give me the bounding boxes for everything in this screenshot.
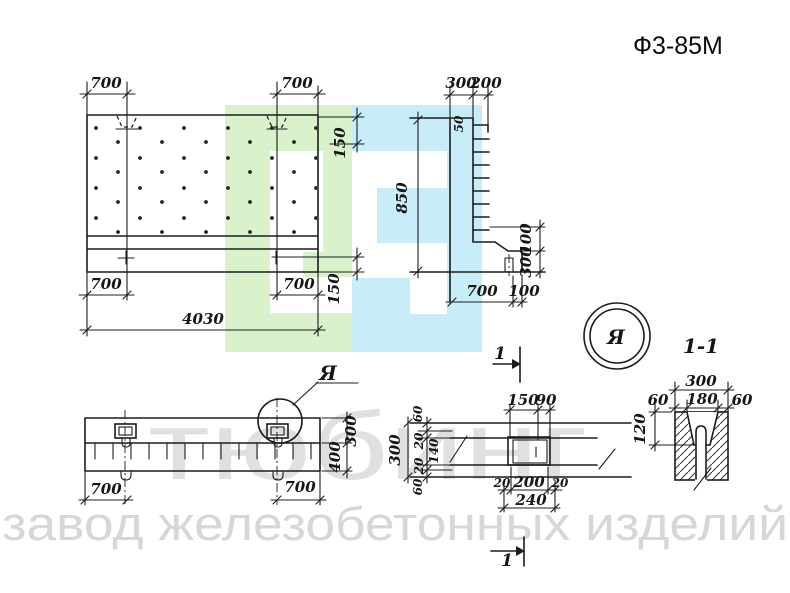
dim-20: 20	[412, 457, 426, 475]
drawing-sheet: тюбинг завод железобетонных изделий Ф3-8…	[0, 0, 790, 593]
dim-300: 300	[685, 372, 717, 390]
marker-letter: Я	[606, 325, 626, 349]
dim-60: 60	[411, 405, 425, 422]
dim-300: 300	[342, 415, 360, 447]
dim-850: 850	[393, 182, 411, 214]
dim-300: 300	[386, 434, 404, 466]
dim-20: 20	[412, 432, 426, 450]
dim-100: 100	[508, 282, 540, 300]
dim-60: 60	[732, 391, 753, 409]
dim-200: 200	[469, 74, 502, 92]
dim-400: 400	[326, 441, 344, 473]
section-number-bottom: 1	[501, 551, 513, 571]
drawing-title: Ф3-85М	[633, 32, 723, 60]
dim-200: 200	[512, 473, 545, 491]
dim-700: 700	[466, 282, 498, 300]
dim-60: 60	[648, 391, 669, 409]
dim-240: 240	[514, 491, 547, 509]
section-label: 1-1	[683, 334, 719, 358]
dim-150: 150	[331, 127, 349, 159]
dim-700: 700	[284, 478, 316, 496]
dim-700: 700	[90, 275, 122, 293]
dim-700: 700	[281, 74, 313, 92]
detail-letter: Я	[318, 361, 338, 385]
dim-50: 50	[452, 115, 466, 132]
dim-700: 700	[90, 480, 122, 498]
dim-120: 120	[631, 413, 649, 445]
view-marker-circle: Я	[584, 303, 650, 369]
dim-700: 700	[90, 74, 122, 92]
dim-20: 20	[551, 476, 569, 490]
lifting-loop-left	[115, 424, 136, 438]
dim-4030: 4030	[182, 310, 224, 328]
dim-150: 150	[507, 391, 539, 409]
watermark-bottom-line: завод железобетонных изделий	[2, 497, 788, 550]
section-number-top: 1	[494, 344, 506, 364]
dim-140: 140	[427, 438, 441, 464]
dim-20: 20	[493, 476, 511, 490]
section-1-1-view: 1-1 300 60 180 60 120	[631, 334, 753, 490]
stippled-concrete-area	[88, 116, 317, 235]
dim-90: 90	[536, 391, 557, 409]
dim-60: 60	[411, 478, 425, 495]
dim-700: 700	[283, 275, 315, 293]
dim-300: 300	[517, 246, 535, 278]
dim-180: 180	[686, 390, 718, 408]
dim-150: 150	[325, 273, 343, 305]
